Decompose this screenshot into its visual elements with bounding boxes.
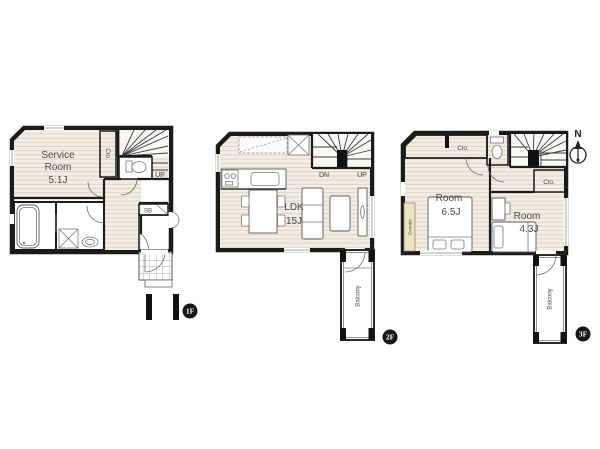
2f-tv-board xyxy=(358,188,367,236)
1f-porch xyxy=(139,252,172,280)
3f-room-second-size: 4.3J xyxy=(520,224,539,235)
1f-porch-step xyxy=(145,280,172,287)
2f-cupboard-dashed xyxy=(239,137,287,153)
2f-stairs-down-label: DN xyxy=(319,172,329,179)
1f-service-room-label-1: Service xyxy=(41,150,75,161)
1f-floor-badge-text: 1F xyxy=(186,307,195,316)
3f-room-second-label: Room xyxy=(514,211,541,222)
2f-low-table xyxy=(330,196,350,231)
3f-stair-post xyxy=(528,150,539,167)
1f-stairs-up-label: UP xyxy=(155,172,165,179)
3f-pillow-1 xyxy=(433,240,446,249)
1f-entrance xyxy=(139,215,170,250)
3f-balcony: Balcony xyxy=(533,255,567,343)
floor-plan-canvas: Service Room 5.1J Clo. UP SB 1F xyxy=(0,0,600,449)
2f-ldk-label: LDK xyxy=(284,202,304,213)
1f-shoe-box-diagonal xyxy=(157,205,167,214)
3f-balcony-label: Balcony xyxy=(548,288,554,309)
compass-north-icon: N xyxy=(570,129,586,163)
1f-toilet-bowl xyxy=(132,162,146,173)
1f-service-room-label-2: Room xyxy=(45,162,72,173)
floor-plan-1f: Service Room 5.1J Clo. UP SB 1F xyxy=(10,126,198,320)
gate-post-right xyxy=(173,294,179,320)
2f-balcony-label: Balcony xyxy=(356,285,362,306)
3f-room-main-size: 6.5J xyxy=(442,207,461,218)
2f-stair-post xyxy=(337,150,347,168)
3f-toilet-bowl xyxy=(492,146,502,159)
floor-plan-2f: Balcony DN UP LDK 15J 2F xyxy=(216,134,398,345)
2f-balcony: Balcony xyxy=(340,250,375,340)
1f-bath-drain xyxy=(23,242,25,244)
3f-desk-chair xyxy=(505,203,510,214)
3f-room-main-label: Room xyxy=(436,193,463,204)
3f-counter-label: Counter xyxy=(408,218,413,235)
compass-n-label: N xyxy=(574,129,581,140)
floor-plan-3f: Balcony N Clo. Clo. Room 6.5J Room 4.3J … xyxy=(401,129,591,343)
gate-post-left xyxy=(146,294,152,320)
3f-closet-top-label: Clo. xyxy=(457,145,469,152)
3f-toilet-tank xyxy=(491,137,504,143)
1f-service-room-size: 5.1J xyxy=(49,175,68,186)
2f-stairs-up-label: UP xyxy=(357,172,367,179)
3f-pillow-3 xyxy=(494,226,503,248)
1f-closet-label: Clo. xyxy=(104,148,111,160)
1f-toilet-tank xyxy=(126,161,132,172)
1f-bathtub xyxy=(17,205,39,248)
3f-floor-badge-text: 3F xyxy=(579,330,588,339)
2f-floor-badge-text: 2F xyxy=(386,333,395,342)
3f-desk xyxy=(492,198,505,220)
1f-shoe-box-label: SB xyxy=(144,209,152,215)
2f-dining-table xyxy=(249,190,277,233)
3f-pillow-2 xyxy=(451,240,464,249)
3f-closet-right-label: Clo. xyxy=(543,179,555,186)
floor-plan-page: Service Room 5.1J Clo. UP SB 1F xyxy=(0,0,600,449)
1f-hall-floor xyxy=(104,179,141,250)
1f-sink xyxy=(82,237,98,247)
2f-kitchen-sink xyxy=(251,173,279,186)
3f-closet-divider xyxy=(445,135,449,148)
2f-sofa xyxy=(302,188,323,239)
2f-ldk-size: 15J xyxy=(286,216,302,227)
1f-front-door-swing xyxy=(171,212,179,228)
